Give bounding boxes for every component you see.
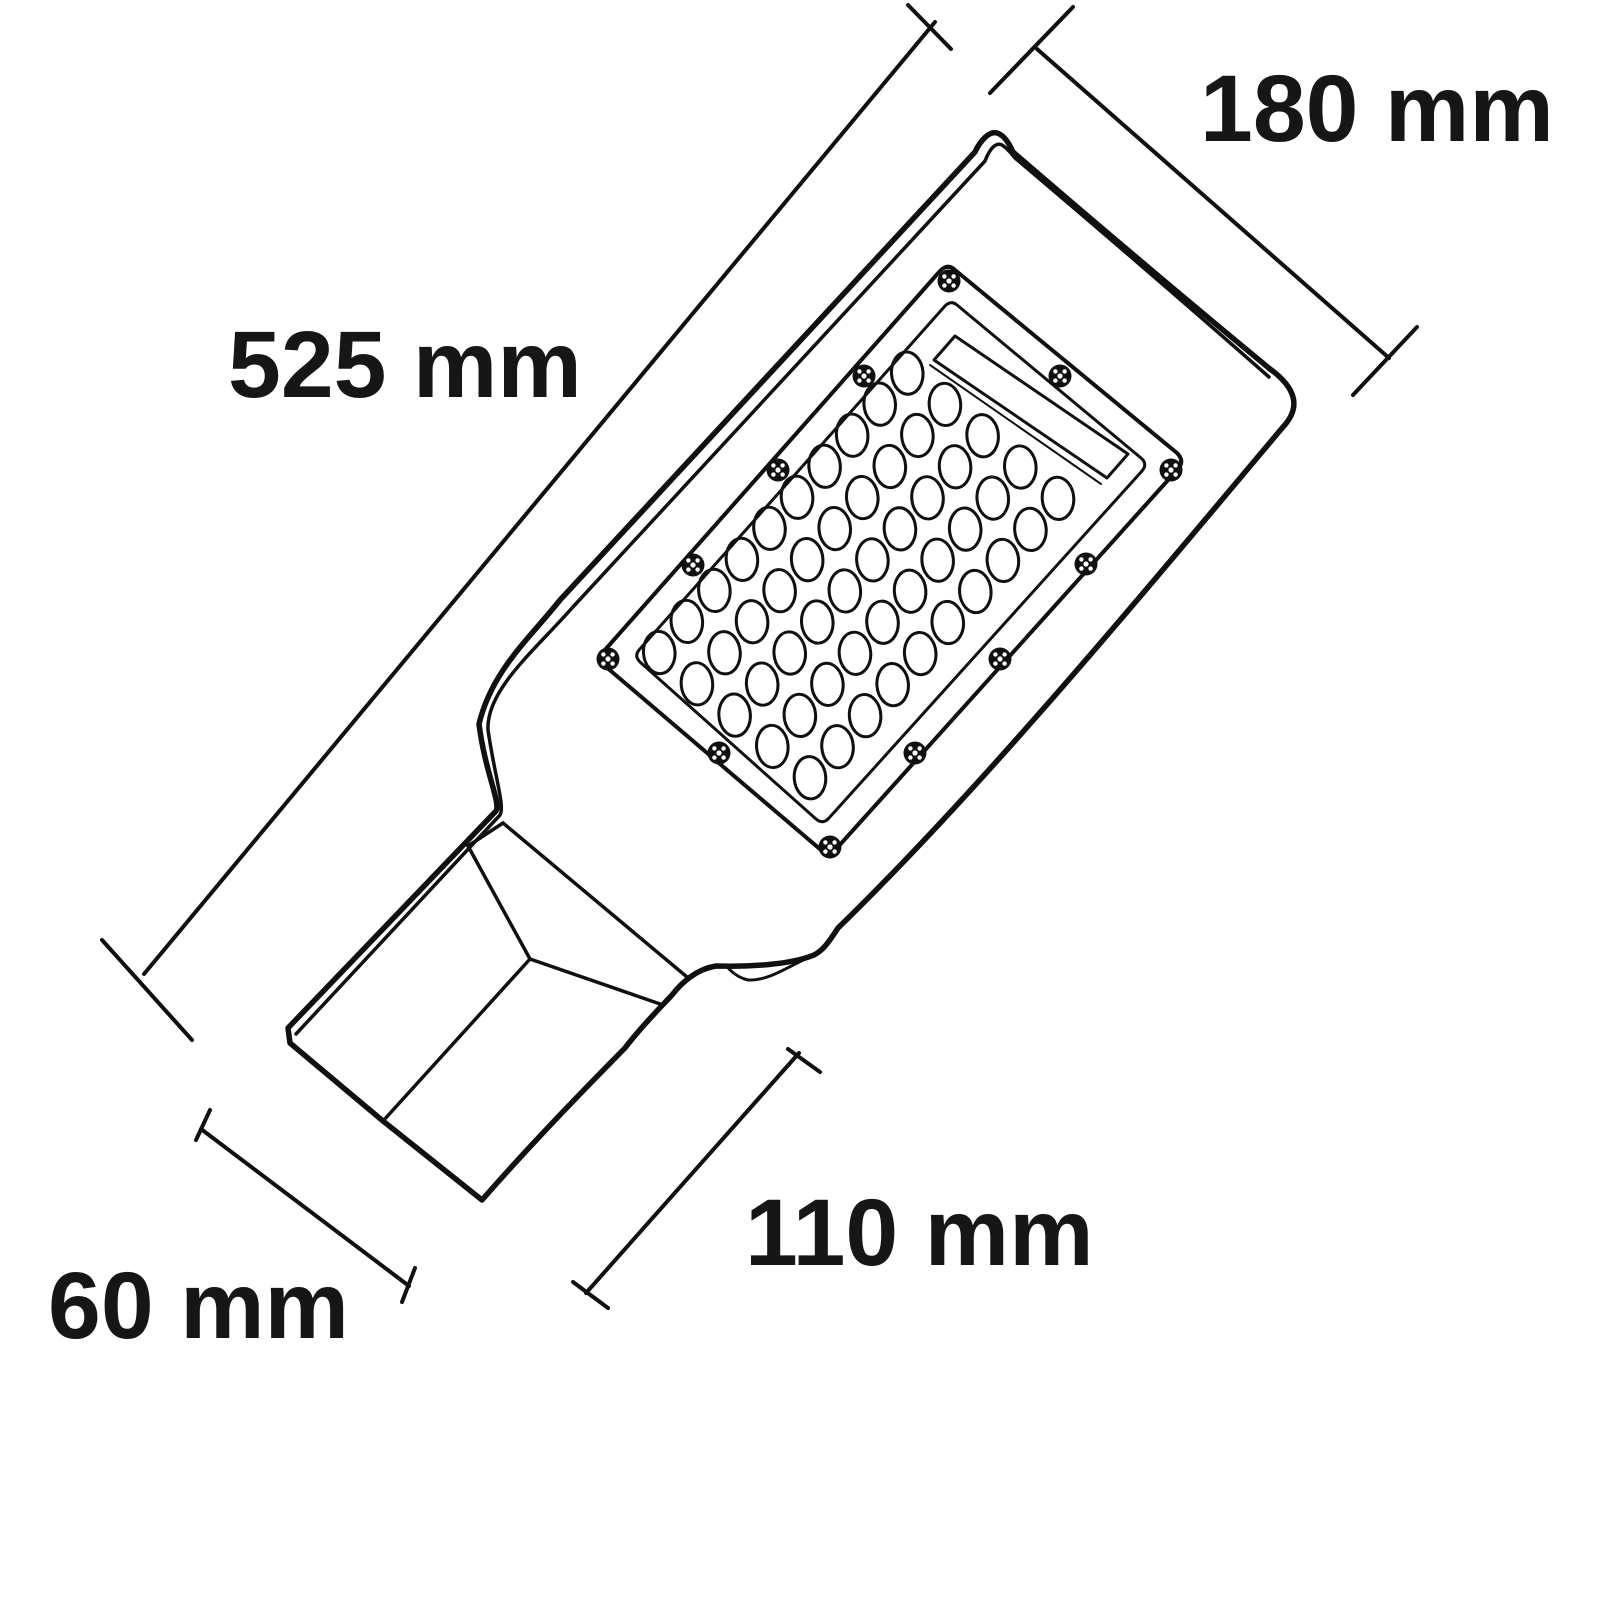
svg-text:110 mm: 110 mm	[745, 1180, 1094, 1286]
svg-text:525 mm: 525 mm	[228, 312, 582, 418]
svg-text:180 mm: 180 mm	[1200, 56, 1554, 162]
svg-text:60 mm: 60 mm	[48, 1253, 349, 1359]
